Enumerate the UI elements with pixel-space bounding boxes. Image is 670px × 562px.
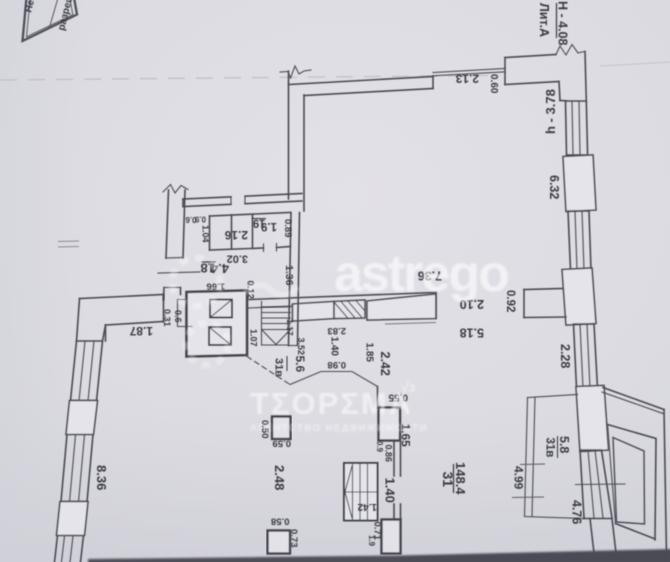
- svg-text:1.85: 1.85: [364, 343, 375, 363]
- svg-text:0.9: 0.9: [194, 215, 206, 224]
- svg-text:148.4: 148.4: [453, 462, 468, 495]
- svg-text:1.87: 1.87: [129, 324, 153, 338]
- svg-text:0.60: 0.60: [488, 74, 499, 94]
- svg-text:0.89: 0.89: [282, 219, 293, 238]
- svg-text:h - 3.78: h - 3.78: [543, 89, 558, 134]
- svg-text:АГЕНТСТВО НЕДВИЖИМОСТИ: АГЕНТСТВО НЕДВИЖИМОСТИ: [250, 423, 428, 434]
- svg-text:1.17: 1.17: [285, 319, 295, 336]
- svg-text:31в: 31в: [273, 358, 285, 377]
- svg-text:0.98: 0.98: [328, 359, 347, 370]
- svg-text:1.07: 1.07: [249, 329, 259, 347]
- svg-text:Лит.А: Лит.А: [537, 3, 551, 37]
- svg-text:4.99: 4.99: [512, 466, 526, 490]
- svg-text:0.71: 0.71: [372, 522, 383, 541]
- svg-text:0.58: 0.58: [271, 516, 290, 527]
- svg-text:2.13: 2.13: [455, 72, 479, 86]
- svg-text:2.48: 2.48: [272, 465, 287, 490]
- svg-text:8.36: 8.36: [94, 465, 109, 490]
- svg-text:1.9: 1.9: [261, 220, 277, 232]
- svg-text:0.6: 0.6: [185, 215, 197, 224]
- svg-text:Н - 4.08: Н - 4.08: [556, 1, 570, 46]
- svg-text:1.04: 1.04: [201, 225, 211, 243]
- svg-text:4.76: 4.76: [570, 500, 584, 524]
- svg-text:2.28: 2.28: [558, 344, 572, 368]
- svg-text:ТΣОРΣМА: ТΣОРΣМА: [250, 386, 413, 421]
- svg-text:0.9: 0.9: [375, 441, 384, 453]
- svg-text:31в: 31в: [544, 438, 556, 458]
- svg-text:1.40: 1.40: [329, 337, 340, 357]
- svg-text:5.6: 5.6: [293, 356, 307, 373]
- svg-text:6.32: 6.32: [547, 175, 561, 199]
- svg-text:astrego: astrego: [334, 245, 508, 303]
- svg-text:0.73: 0.73: [288, 529, 299, 548]
- svg-text:2.83: 2.83: [328, 325, 347, 336]
- svg-text:0.59: 0.59: [273, 438, 292, 449]
- svg-text:1.42: 1.42: [357, 501, 377, 512]
- svg-text:1.36: 1.36: [283, 265, 295, 286]
- svg-text:0.31: 0.31: [162, 309, 172, 327]
- svg-text:2.16: 2.16: [224, 228, 248, 242]
- svg-text:3.52: 3.52: [296, 338, 306, 356]
- svg-text:0.6: 0.6: [173, 310, 183, 323]
- svg-text:5.8: 5.8: [557, 436, 571, 453]
- svg-text:1.40: 1.40: [383, 478, 398, 503]
- svg-text:2.42: 2.42: [378, 352, 392, 376]
- svg-text:5.18: 5.18: [460, 326, 484, 340]
- svg-text:0.86: 0.86: [384, 445, 394, 463]
